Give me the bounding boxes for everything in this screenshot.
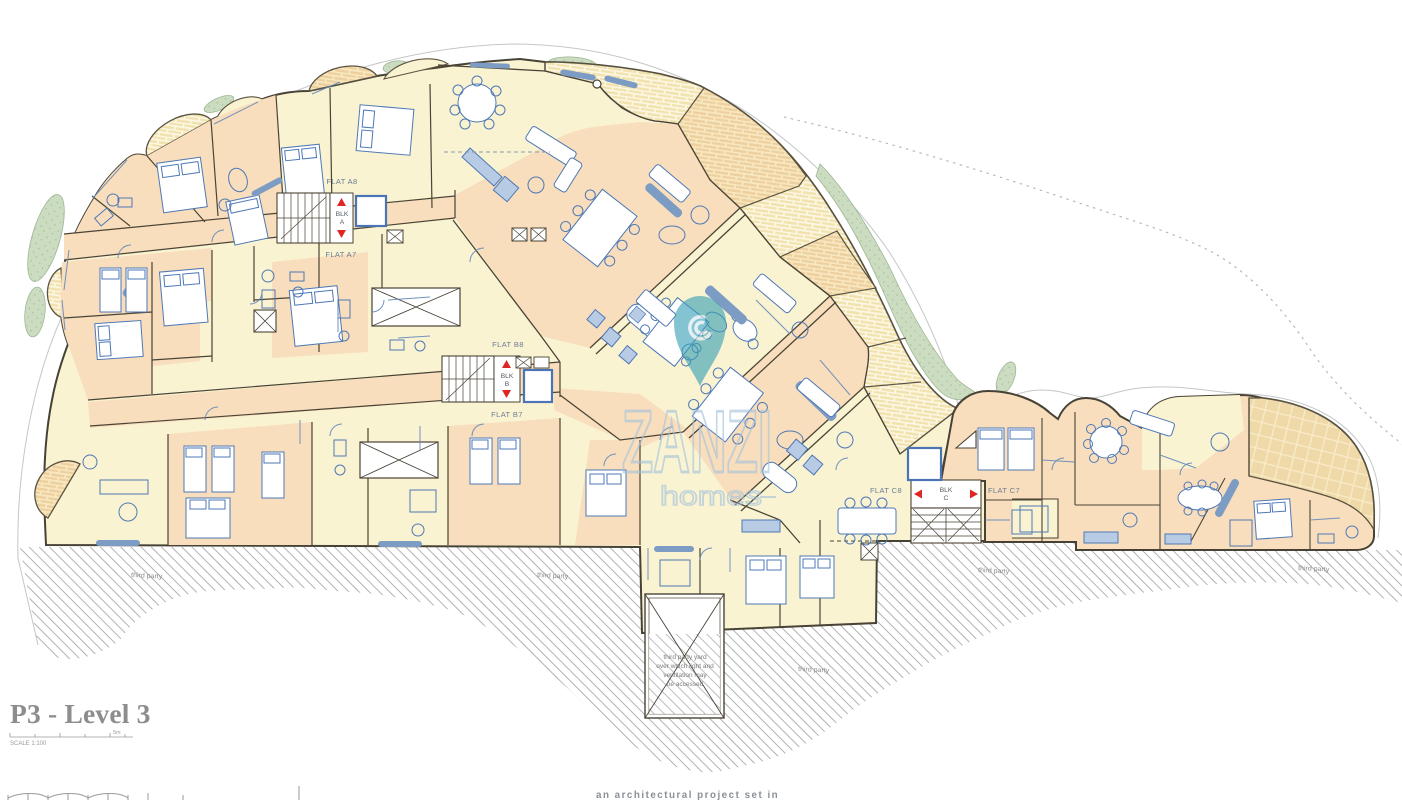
svg-text:ventilation may: ventilation may bbox=[663, 672, 707, 679]
svg-text:FLAT A7: FLAT A7 bbox=[325, 250, 356, 259]
svg-text:be accessed: be accessed bbox=[667, 681, 704, 688]
svg-text:B: B bbox=[505, 381, 510, 388]
svg-text:an architectural project set i: an architectural project set in bbox=[596, 790, 779, 800]
svg-text:FLAT C7: FLAT C7 bbox=[988, 486, 1020, 495]
svg-text:BLK: BLK bbox=[501, 373, 514, 380]
svg-text:FLAT B8: FLAT B8 bbox=[492, 340, 524, 349]
svg-text:5m: 5m bbox=[113, 730, 121, 736]
svg-text:FLAT C8: FLAT C8 bbox=[870, 486, 902, 495]
svg-text:C: C bbox=[944, 495, 949, 502]
svg-text:over which light and: over which light and bbox=[656, 663, 714, 670]
svg-text:BLK: BLK bbox=[940, 487, 953, 494]
svg-text:third party yard: third party yard bbox=[663, 654, 707, 661]
svg-text:P3 - Level 3: P3 - Level 3 bbox=[10, 698, 151, 729]
svg-text:BLK: BLK bbox=[336, 211, 349, 218]
svg-text:A: A bbox=[340, 219, 345, 226]
svg-text:homes: homes bbox=[660, 481, 762, 511]
svg-text:ZANZI: ZANZI bbox=[622, 392, 772, 491]
svg-text:FLAT B7: FLAT B7 bbox=[491, 410, 523, 419]
svg-text:SCALE 1:100: SCALE 1:100 bbox=[10, 741, 47, 747]
svg-text:FLAT A8: FLAT A8 bbox=[326, 177, 357, 186]
